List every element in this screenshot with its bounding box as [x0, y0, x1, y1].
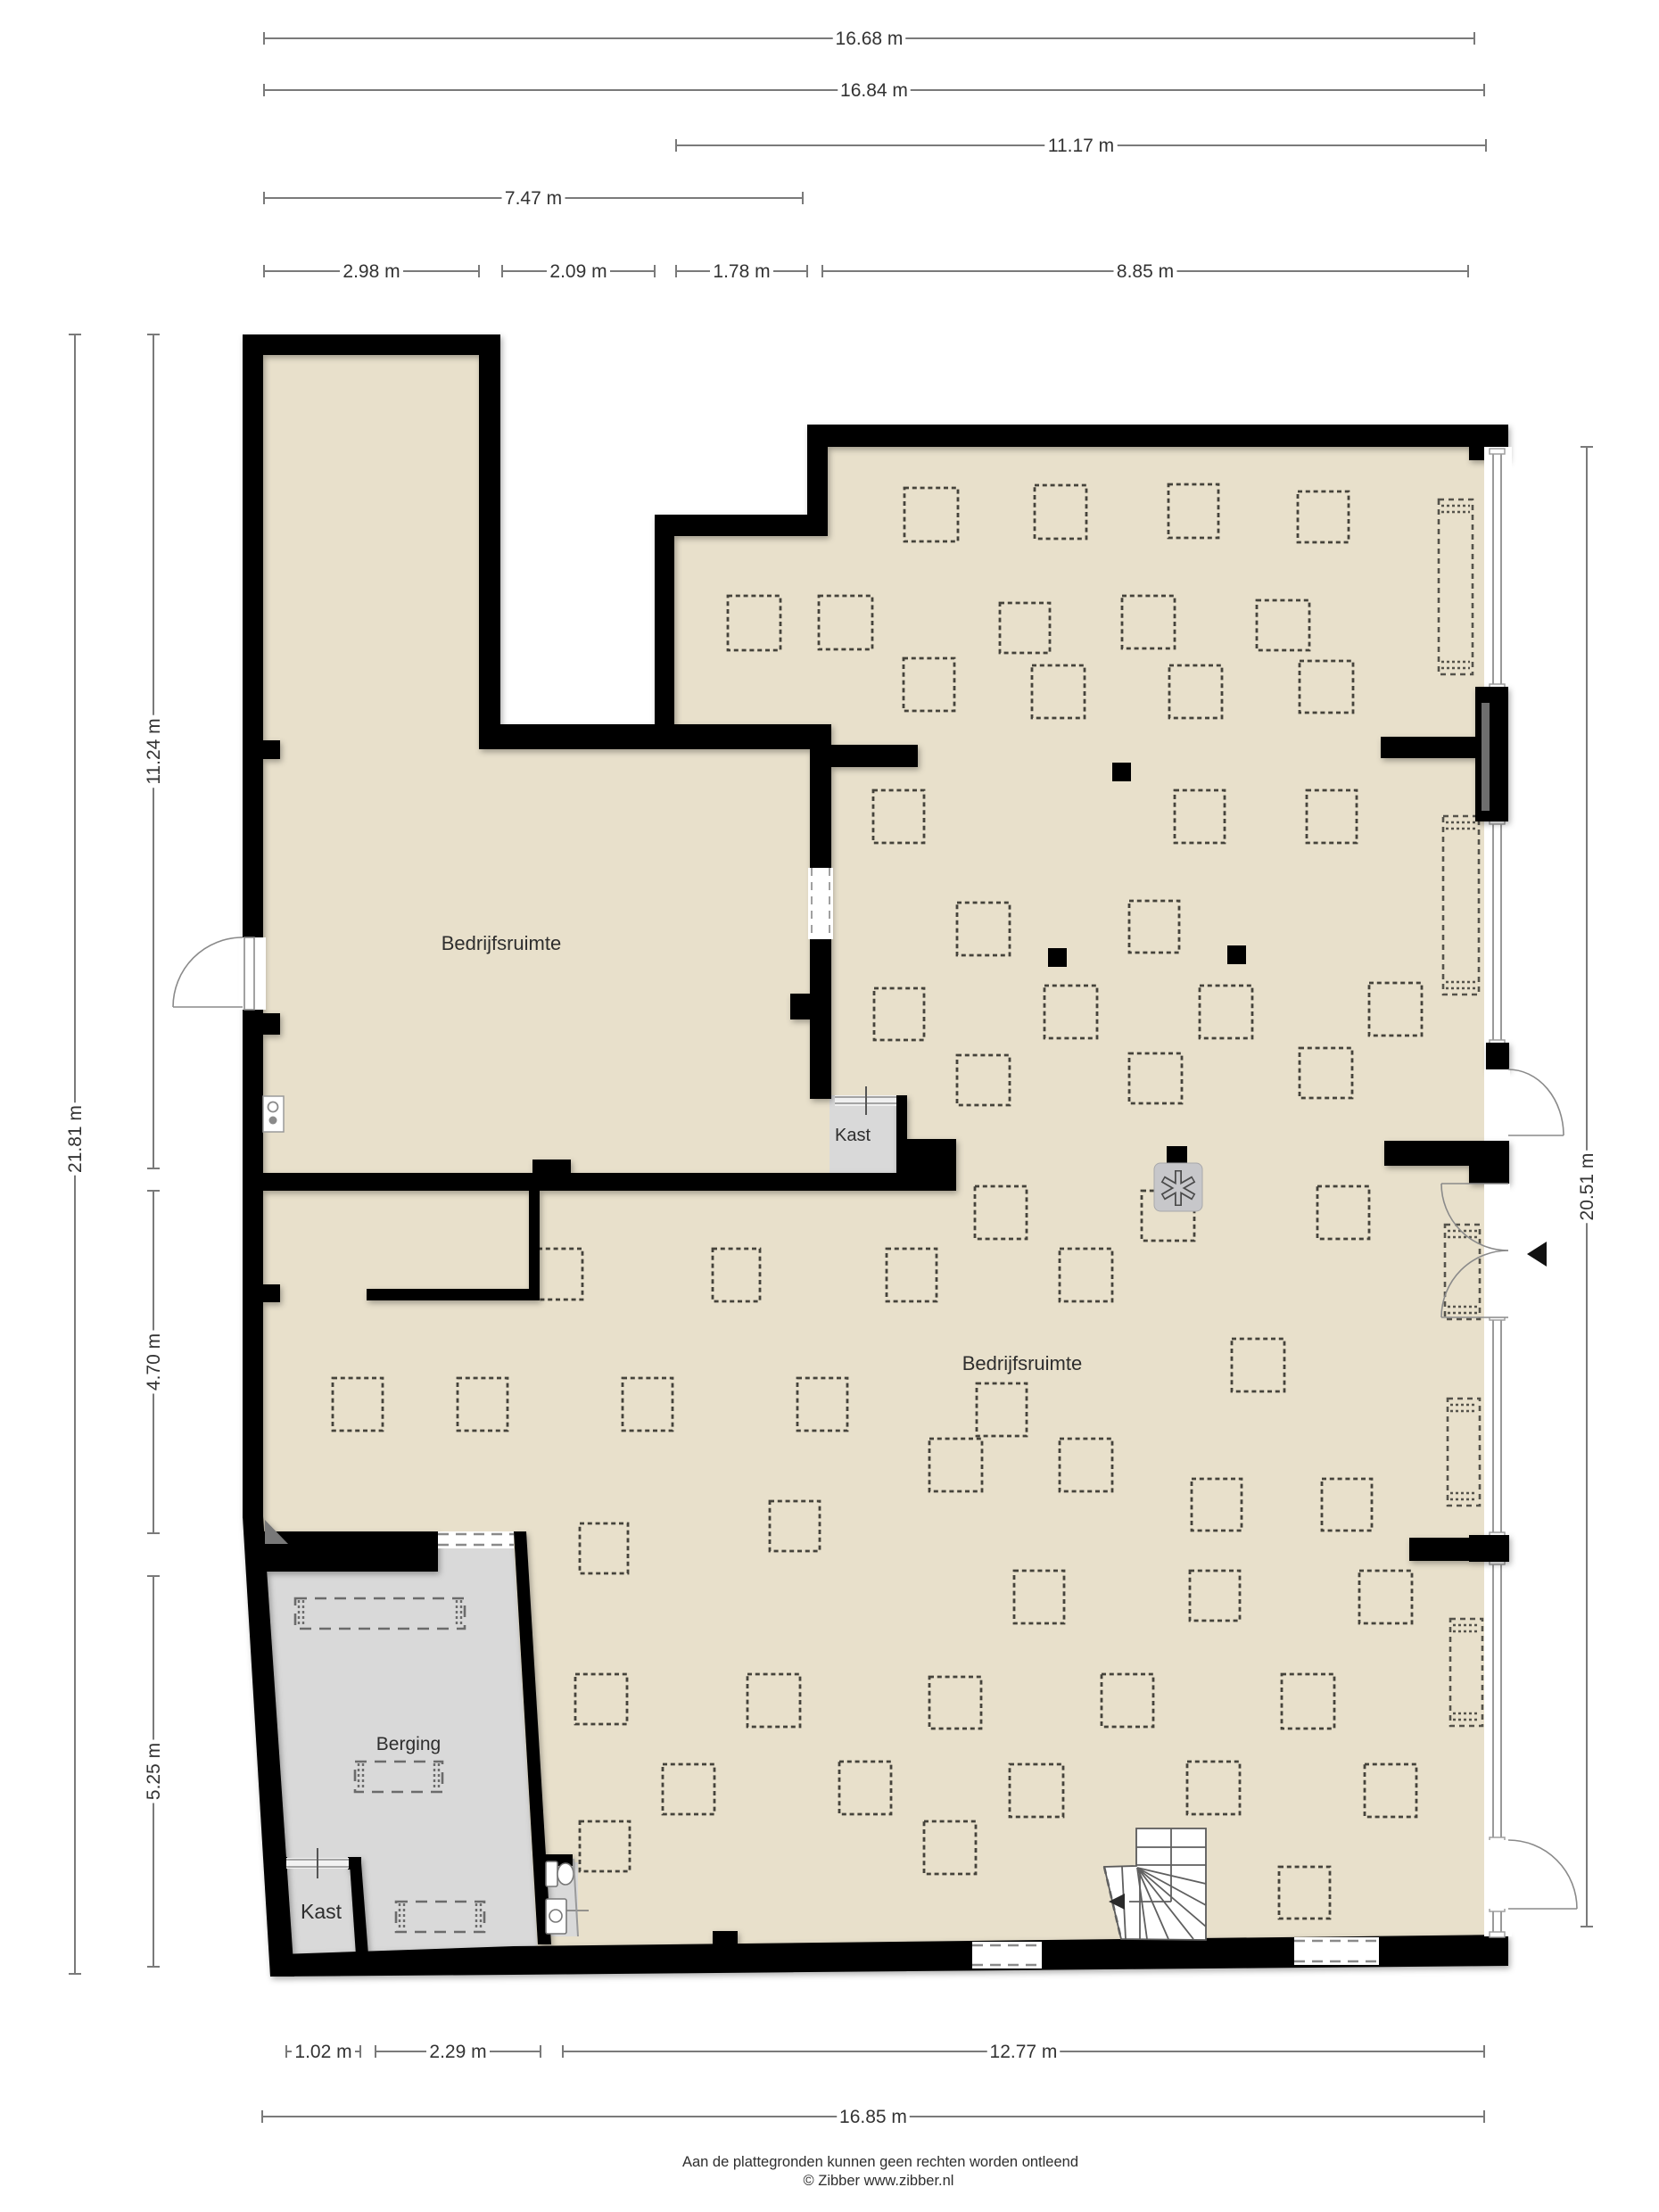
svg-text:5.25 m: 5.25 m	[144, 1743, 164, 1800]
svg-text:16.84 m: 16.84 m	[840, 80, 908, 101]
svg-text:© Zibber www.zibber.nl: © Zibber www.zibber.nl	[804, 2173, 954, 2189]
svg-text:Kast: Kast	[301, 1900, 343, 1923]
svg-text:7.47 m: 7.47 m	[505, 188, 562, 209]
svg-text:1.02 m: 1.02 m	[294, 2042, 351, 2062]
svg-text:Kast: Kast	[835, 1126, 871, 1145]
svg-text:4.70 m: 4.70 m	[144, 1333, 164, 1391]
svg-text:Bedrijfsruimte: Bedrijfsruimte	[442, 932, 561, 954]
svg-text:12.77 m: 12.77 m	[990, 2042, 1058, 2062]
svg-text:Berging: Berging	[376, 1734, 441, 1754]
svg-text:Bedrijfsruimte: Bedrijfsruimte	[962, 1352, 1082, 1374]
svg-text:8.85 m: 8.85 m	[1117, 261, 1174, 282]
svg-text:2.29 m: 2.29 m	[429, 2042, 486, 2062]
svg-text:16.68 m: 16.68 m	[836, 29, 904, 49]
svg-text:2.98 m: 2.98 m	[343, 261, 400, 282]
svg-text:20.51 m: 20.51 m	[1577, 1153, 1597, 1221]
svg-text:11.24 m: 11.24 m	[144, 718, 164, 784]
svg-text:16.85 m: 16.85 m	[839, 2107, 907, 2127]
svg-text:Aan de plattegronden kunnen ge: Aan de plattegronden kunnen geen rechten…	[682, 2154, 1078, 2170]
svg-text:2.09 m: 2.09 m	[549, 261, 607, 282]
svg-text:21.81 m: 21.81 m	[65, 1105, 86, 1173]
svg-text:11.17 m: 11.17 m	[1048, 136, 1114, 156]
svg-text:1.78 m: 1.78 m	[713, 261, 770, 282]
